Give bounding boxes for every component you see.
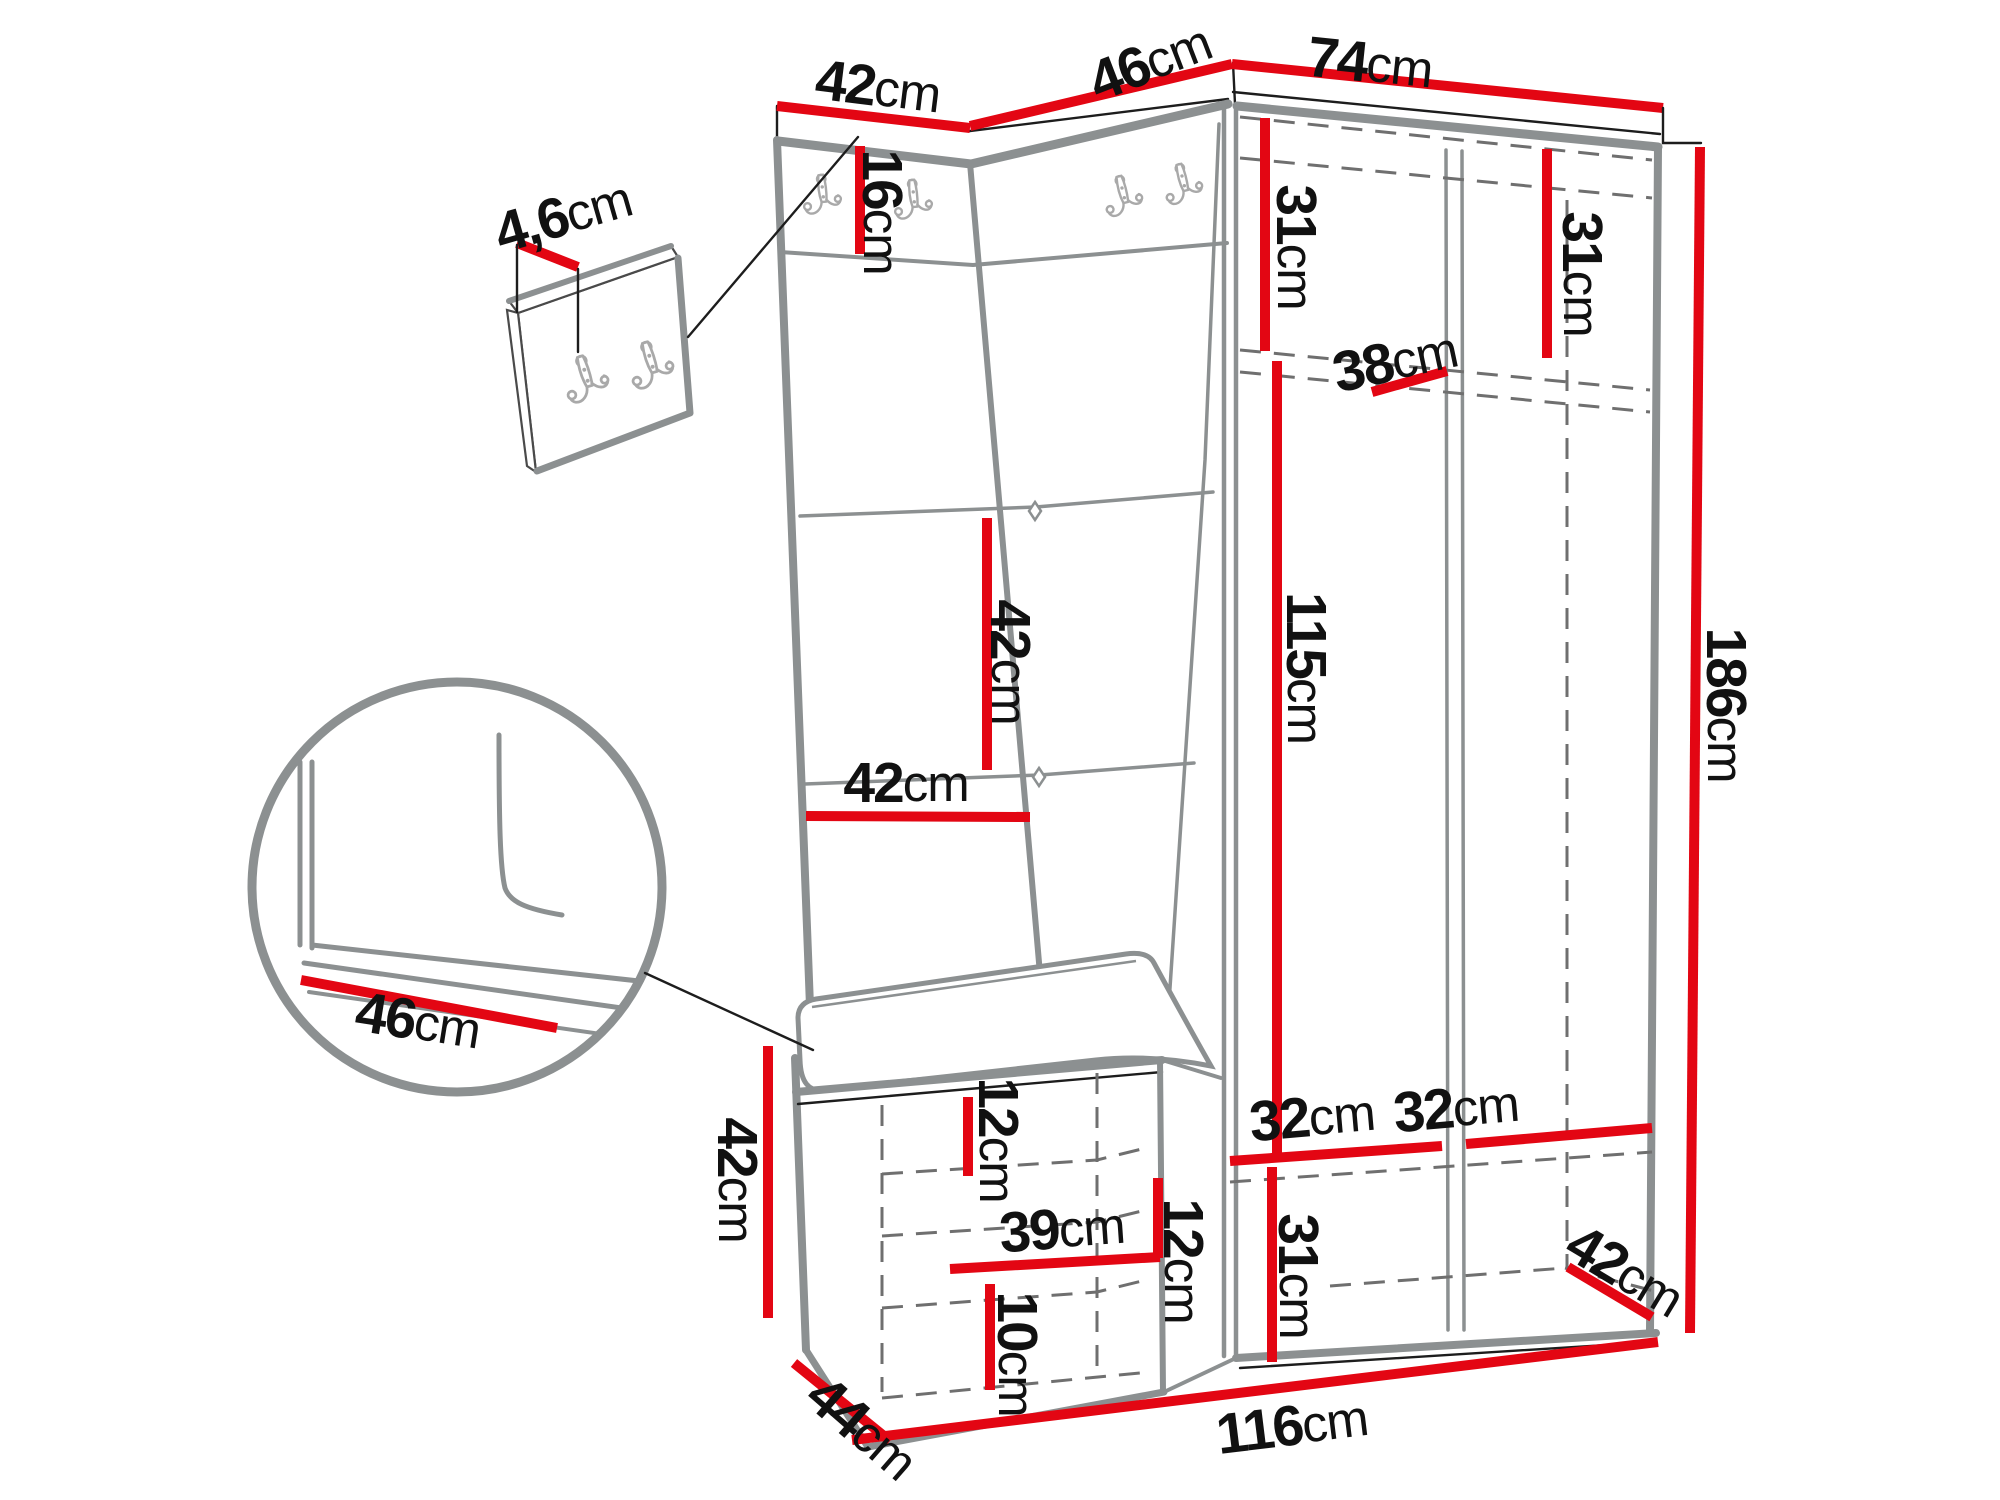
dim-label-seat-depth: 46cm bbox=[351, 980, 485, 1063]
dim-label-shelf-left-height: 31cm bbox=[1264, 184, 1328, 309]
dim-label-hook-panel-height: 16cm bbox=[850, 149, 914, 274]
dim-label-quilt-square-height: 42cm bbox=[978, 599, 1042, 724]
dim-label-bottom-depth-right: 42cm bbox=[1555, 1211, 1695, 1330]
dim-line-74-top bbox=[1232, 64, 1663, 108]
door-split-edge bbox=[1462, 151, 1464, 1330]
quilt-button bbox=[1029, 502, 1041, 520]
panel-right-edge bbox=[970, 163, 1045, 1032]
coat-hook-icon bbox=[1100, 172, 1145, 218]
extension-step bbox=[1663, 108, 1701, 143]
dim-label-bench-height: 42cm bbox=[705, 1117, 769, 1242]
dim-label-bottom-section-height: 31cm bbox=[1266, 1213, 1330, 1338]
hook-rail-seam bbox=[780, 243, 1227, 265]
dim-label-total-height: 186cm bbox=[1694, 627, 1758, 782]
dim-line-42-mid bbox=[806, 816, 1030, 817]
panel-left-edge bbox=[777, 140, 813, 1085]
dim-label-panel-thickness: 4,6cm bbox=[487, 166, 638, 266]
dim-label-bottom-left-width: 32cm bbox=[1247, 1080, 1377, 1155]
wardrobe-right-edge bbox=[1650, 147, 1658, 1332]
leader-lines bbox=[517, 108, 1701, 1050]
dim-label-bench-top-gap: 12cm bbox=[966, 1077, 1030, 1202]
detail-leader-line bbox=[688, 137, 858, 337]
upholstered-panel bbox=[777, 99, 1228, 1085]
furniture-dimension-diagram: 42cm 46cm 74cm 4,6cm 16cm 31cm 31cm 38cm… bbox=[0, 0, 2000, 1500]
edge-line bbox=[1164, 1358, 1236, 1392]
backrest-edge bbox=[499, 735, 562, 915]
coat-hook-icon bbox=[1160, 160, 1205, 206]
seat-edge bbox=[312, 945, 657, 983]
dim-label-hanging-height: 115cm bbox=[1274, 592, 1338, 744]
dim-label-bottom-right-width: 32cm bbox=[1391, 1071, 1521, 1146]
diagram-canvas: 42cm 46cm 74cm 4,6cm 16cm 31cm 31cm 38cm… bbox=[0, 0, 2000, 1500]
dim-label-wardrobe-top-width: 74cm bbox=[1304, 25, 1435, 102]
dim-label-shelf-depth: 38cm bbox=[1327, 317, 1463, 406]
dim-label-bench-shelf-width: 39cm bbox=[997, 1193, 1127, 1266]
bench-cushion bbox=[798, 953, 1211, 1090]
dim-label-panel-mid-width: 42cm bbox=[843, 751, 968, 815]
dim-label-bench-mid-gap: 12cm bbox=[1151, 1198, 1215, 1323]
quilt-seam bbox=[800, 492, 1213, 516]
bench-left-edge bbox=[795, 1058, 806, 1350]
dim-label-corner-top-width: 46cm bbox=[1080, 10, 1220, 115]
quilt-button bbox=[1033, 768, 1045, 786]
hook-panel-detail bbox=[507, 246, 690, 472]
corner-seam bbox=[1166, 124, 1219, 1048]
dim-label-shelf-right-height: 31cm bbox=[1550, 211, 1614, 336]
circle-leader-line bbox=[645, 973, 813, 1050]
dim-label-bench-bottom-gap: 10cm bbox=[985, 1291, 1049, 1416]
